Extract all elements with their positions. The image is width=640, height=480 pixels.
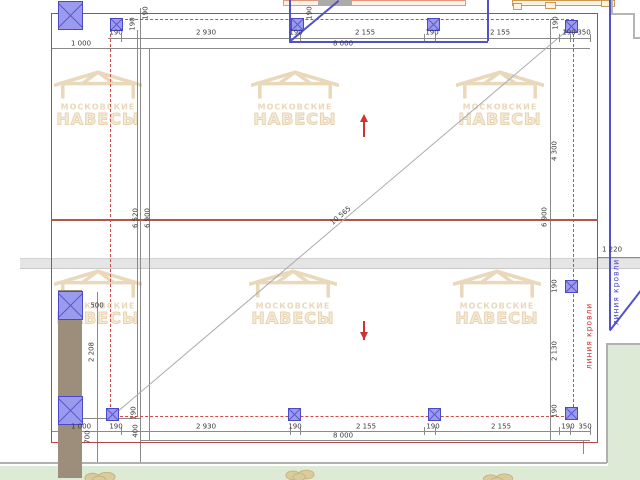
dim-label-rotated: 190 — [552, 279, 559, 292]
post-square — [288, 408, 301, 421]
dim-label: 2 930 — [196, 30, 216, 37]
top-structure-orange-tab2 — [545, 2, 556, 9]
slope-arrow-head — [360, 114, 368, 122]
dim-label-rotated: 2 208 — [89, 342, 96, 362]
dim-label-rotated: 6 900 — [145, 208, 152, 228]
dim-label: 2 155 — [491, 424, 511, 431]
dim-label-rotated: 190 — [131, 406, 138, 419]
post-square — [428, 408, 441, 421]
pier-square — [58, 1, 83, 30]
dim-label: 1 220 — [602, 247, 622, 254]
blue-canopy-bottom-edge — [289, 41, 488, 43]
dim-label-rotated: 400 — [133, 424, 140, 437]
dim-label-rotated: 700 — [85, 430, 92, 443]
post-square — [106, 408, 119, 421]
dim-label-rotated: 2 130 — [552, 341, 559, 361]
pier-square — [58, 396, 83, 425]
blue-canopy-right-edge — [487, 0, 489, 41]
top-structure-orange — [512, 0, 605, 6]
dim-label: 190 — [109, 30, 122, 37]
roof-line-blue-vertical — [609, 0, 611, 330]
dim-label: 190 — [562, 30, 575, 37]
dim-label-rotated: 4 300 — [552, 141, 559, 161]
dim-label: 2 155 — [355, 30, 375, 37]
dim-label-rotated: 190 — [553, 16, 560, 29]
dim-label-rotated: 6 900 — [542, 207, 549, 227]
dim-label: 350 — [577, 30, 590, 37]
post-square — [565, 407, 578, 420]
bush-shape — [84, 468, 116, 480]
lawn-right-border-top — [606, 343, 640, 345]
dim-label-rotated: 190 — [307, 6, 314, 19]
dim-label-rotated: 190 — [552, 404, 559, 417]
top-structure-orange-tab1 — [513, 3, 522, 10]
lawn-strip-border — [0, 462, 607, 464]
dim-label: 190 — [288, 424, 301, 431]
dim-label: 2 155 — [490, 30, 510, 37]
post-square — [565, 280, 578, 293]
dim-label: 8 000 — [333, 433, 353, 440]
dim-label: 350 — [578, 424, 591, 431]
top-structure-salmon — [283, 0, 466, 6]
dim-line-h — [598, 257, 640, 258]
neighbour-wall-segment — [633, 13, 635, 37]
dim-label-rotated: 6 520 — [133, 208, 140, 228]
slope-arrow-head — [360, 332, 368, 340]
lawn-right — [608, 345, 640, 466]
dim-label: 2 930 — [196, 424, 216, 431]
dim-label: 8 000 — [333, 41, 353, 48]
dim-label: 190 — [425, 30, 438, 37]
neighbour-wall-segment — [611, 13, 633, 15]
roof-line-label: линия кровли — [612, 259, 621, 325]
dim-label-rotated: 190 — [143, 6, 150, 19]
lawn-right-border-left — [606, 343, 608, 463]
roof-line-label: линия кровли — [585, 303, 594, 369]
dim-label: 190 — [561, 424, 574, 431]
pier-square — [58, 291, 83, 320]
bush-shape — [481, 469, 515, 480]
neighbour-wall-segment — [611, 0, 613, 13]
neighbour-wall-segment — [633, 37, 640, 39]
dim-label: 500 — [90, 303, 103, 310]
canopy-plan-drawing: МОСКОВСКИЕНАВЕСЫМОСКОВСКИЕНАВЕСЫМОСКОВСК… — [0, 0, 640, 480]
dim-label: 1 000 — [71, 41, 91, 48]
dim-label-rotated: 190 — [130, 17, 137, 30]
dim-label: 190 — [109, 424, 122, 431]
dim-label: 190 — [426, 424, 439, 431]
dim-label: 2 155 — [356, 424, 376, 431]
bush-shape — [285, 466, 315, 479]
dim-label: 190 — [289, 30, 302, 37]
